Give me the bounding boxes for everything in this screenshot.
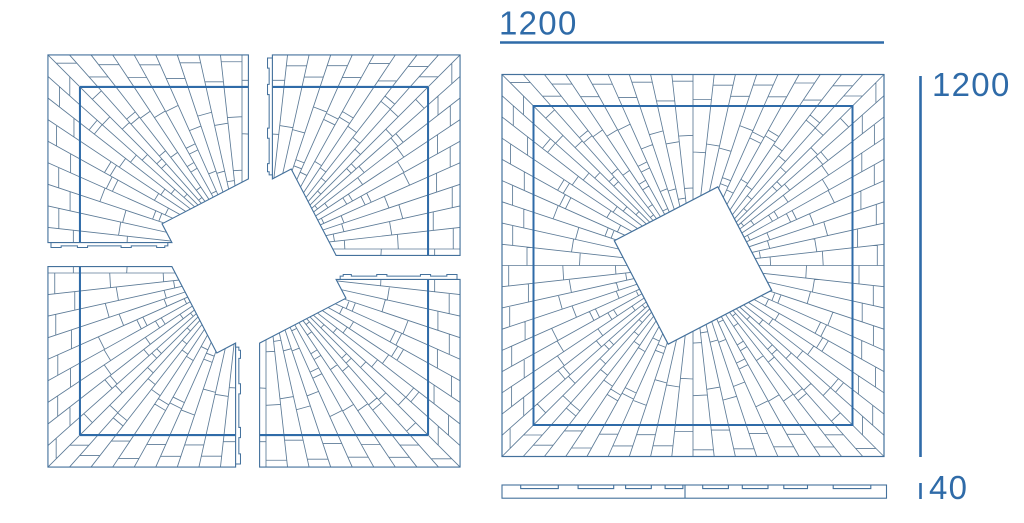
- svg-text:1200: 1200: [932, 66, 1011, 103]
- svg-text:40: 40: [929, 469, 968, 506]
- svg-text:1200: 1200: [499, 5, 578, 42]
